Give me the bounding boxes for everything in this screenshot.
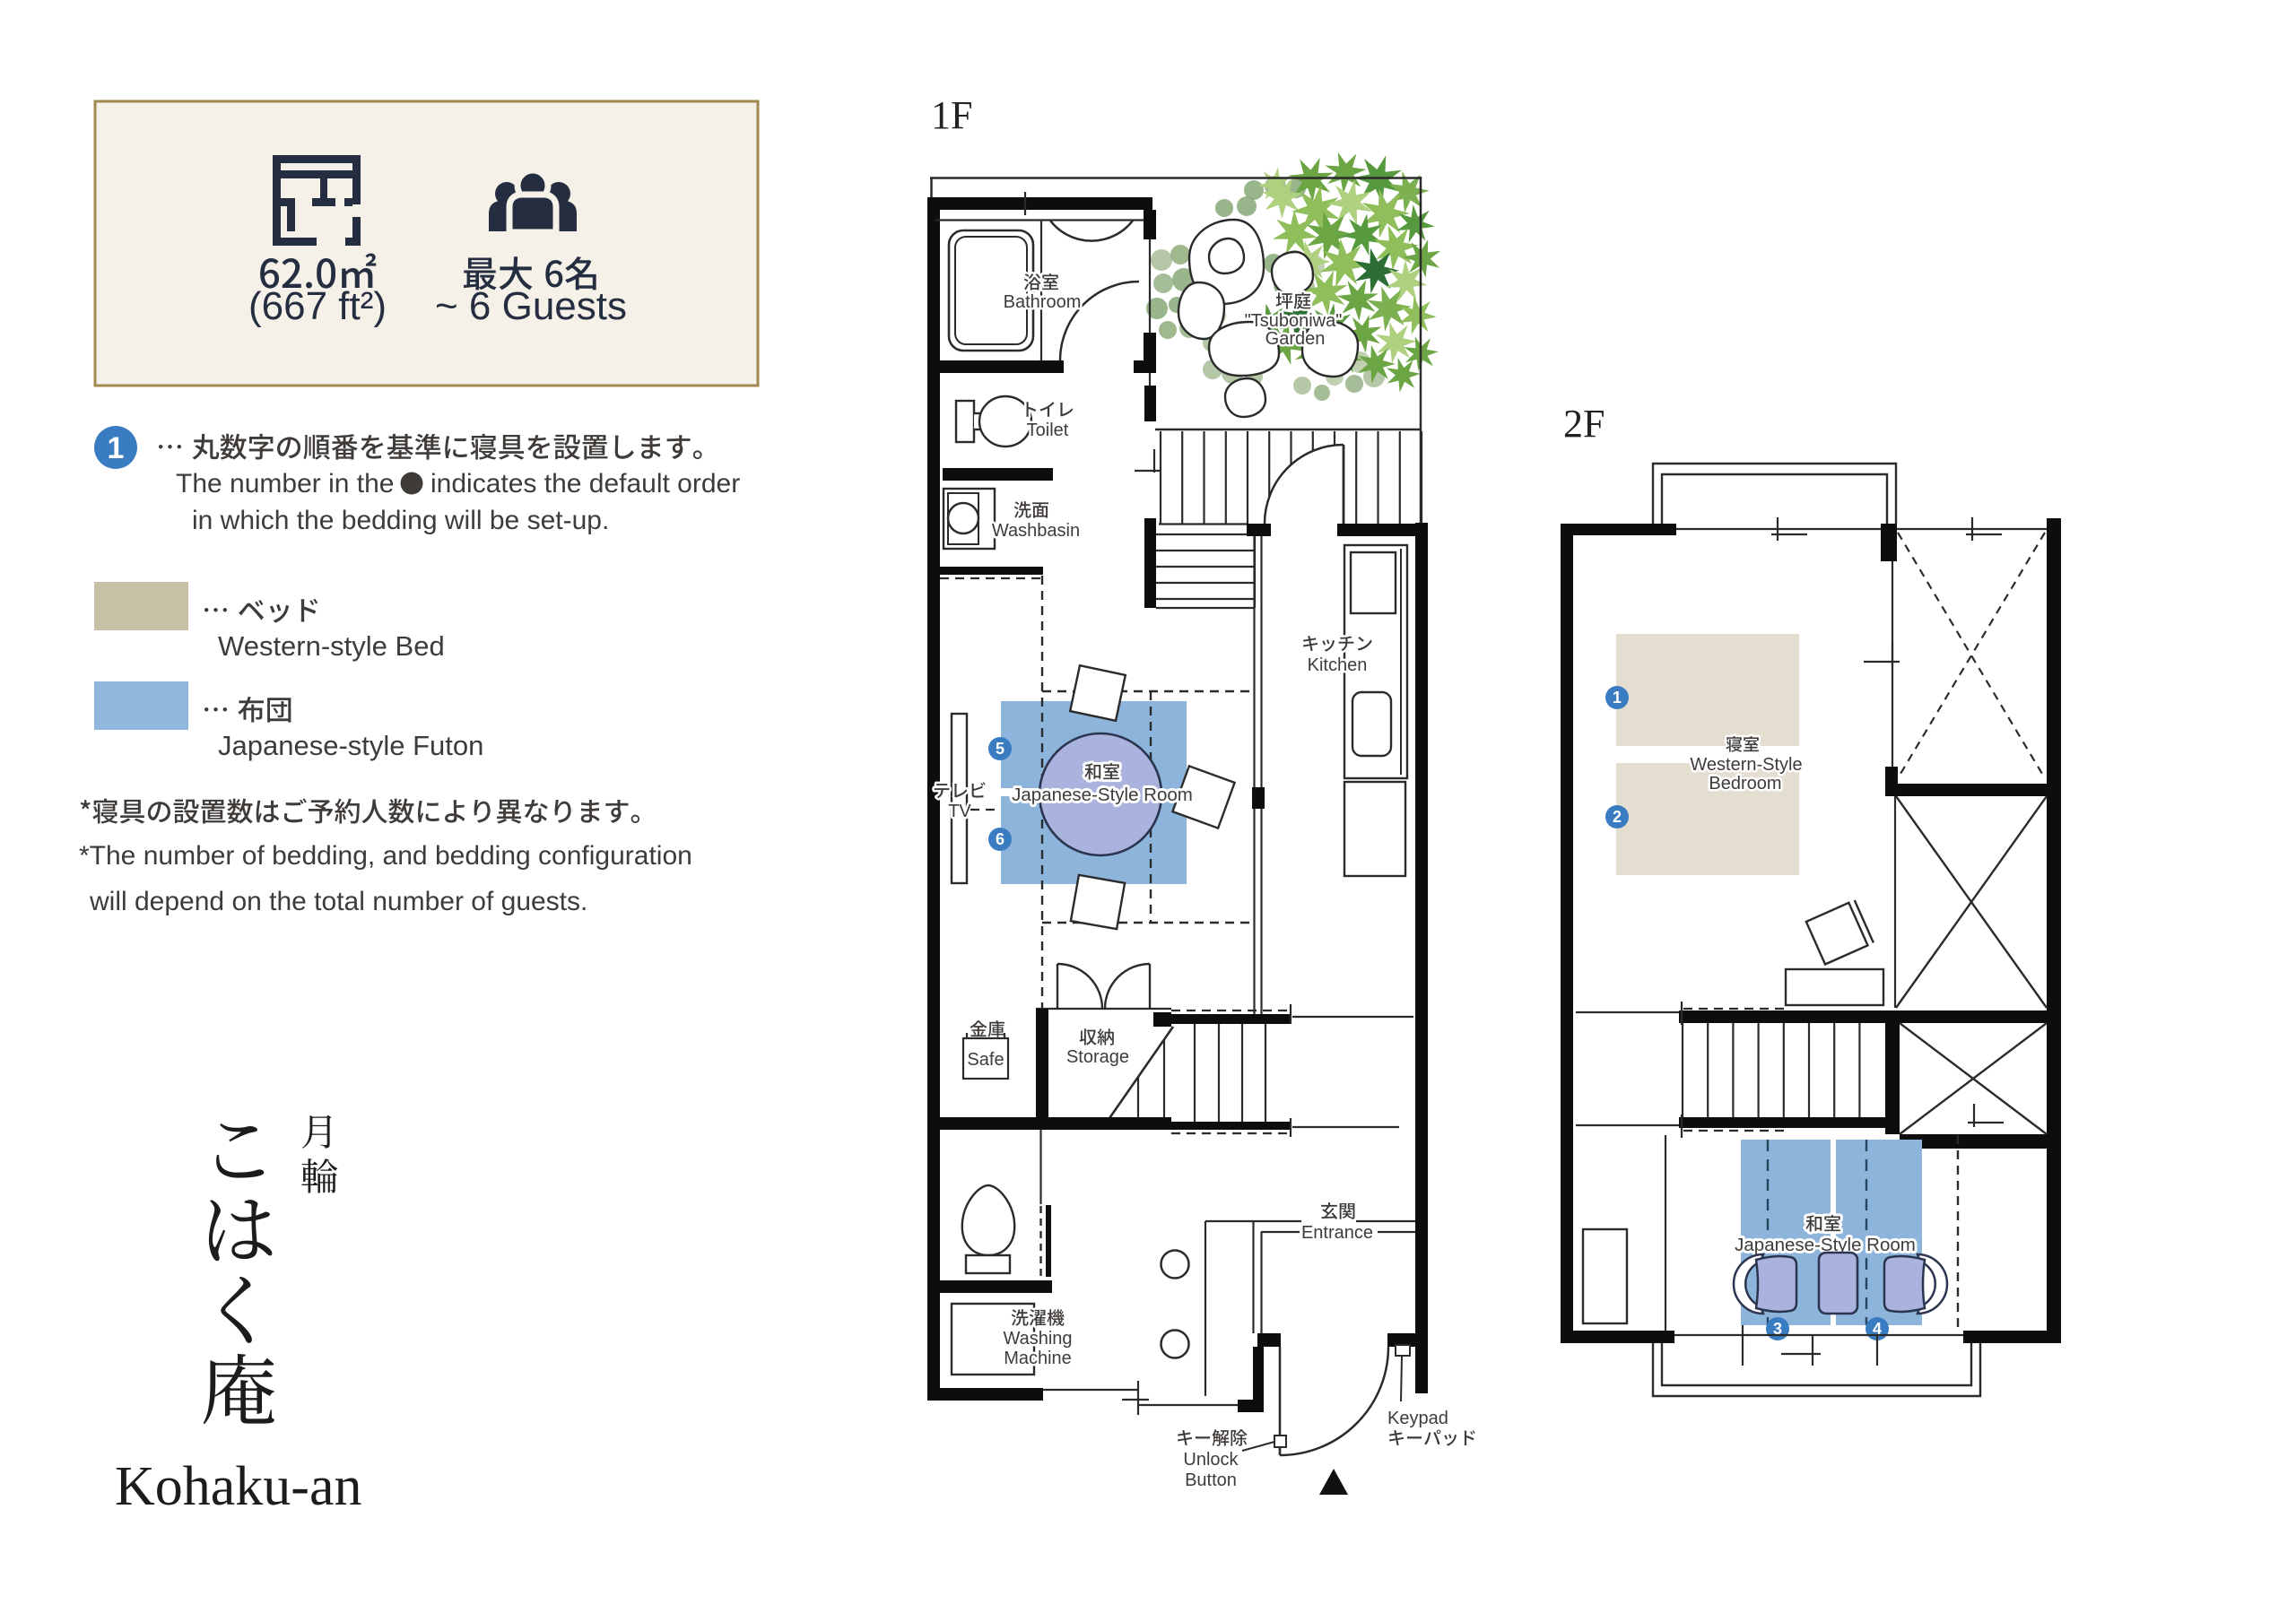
svg-text:Storage: Storage	[1066, 1047, 1129, 1067]
svg-text:Machine: Machine	[1004, 1349, 1072, 1368]
svg-text:1F: 1F	[931, 93, 972, 137]
svg-text:1: 1	[1613, 689, 1622, 707]
svg-text:Garden: Garden	[1265, 329, 1326, 349]
svg-text:Unlock: Unlock	[1183, 1450, 1239, 1470]
svg-text:6: 6	[996, 830, 1004, 848]
svg-text:Keypad: Keypad	[1387, 1409, 1448, 1428]
svg-text:Button: Button	[1185, 1470, 1237, 1490]
svg-text:in which the bedding will be s: in which the bedding will be set-up.	[192, 506, 609, 535]
svg-text:Japanese-style Futon: Japanese-style Futon	[218, 730, 483, 761]
svg-text:Safe: Safe	[967, 1050, 1004, 1070]
svg-text:(667 ft²): (667 ft²)	[248, 284, 387, 328]
svg-text:2F: 2F	[1563, 402, 1605, 446]
svg-text:Kitchen: Kitchen	[1308, 655, 1368, 675]
svg-text:Japanese-Style Room: Japanese-Style Room	[1012, 785, 1193, 805]
svg-text:*The number of bedding, and be: *The number of bedding, and bedding conf…	[79, 841, 692, 871]
svg-text:Washbasin: Washbasin	[992, 521, 1080, 541]
svg-text:Washing: Washing	[1003, 1329, 1072, 1349]
svg-text:"Tsuboniwa": "Tsuboniwa"	[1245, 311, 1343, 331]
svg-text:will depend on the total numbe: will depend on the total number of guest…	[89, 887, 587, 916]
svg-text:Kohaku-an: Kohaku-an	[115, 1456, 361, 1517]
svg-text:TV: TV	[948, 802, 971, 821]
svg-text:Bedroom: Bedroom	[1709, 774, 1781, 794]
svg-text:The number in the: The number in the	[176, 469, 394, 499]
svg-text:Bathroom: Bathroom	[1004, 292, 1082, 312]
svg-text:~ 6 Guests: ~ 6 Guests	[435, 284, 627, 328]
svg-text:Entrance: Entrance	[1301, 1223, 1373, 1243]
svg-text:Western-Style: Western-Style	[1690, 755, 1802, 775]
svg-text:1: 1	[108, 431, 125, 465]
svg-text:Toilet: Toilet	[1027, 421, 1069, 440]
svg-text:5: 5	[996, 740, 1004, 758]
svg-text:2: 2	[1613, 808, 1622, 826]
svg-text:Western-style Bed: Western-style Bed	[218, 630, 445, 662]
svg-text:indicates the default order: indicates the default order	[430, 469, 740, 499]
